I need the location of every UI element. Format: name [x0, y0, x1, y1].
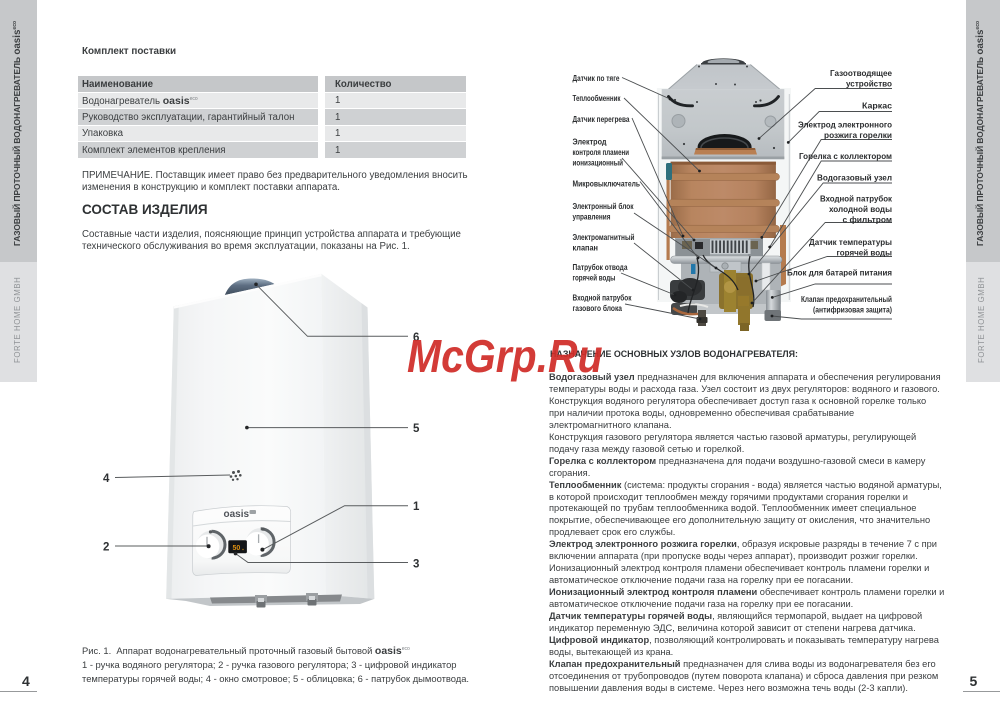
- svg-text:1: 1: [413, 501, 420, 513]
- svg-text:Электромагнитный: Электромагнитный: [573, 233, 635, 242]
- svg-text:ионизационный: ионизационный: [573, 159, 624, 168]
- svg-text:Датчик температуры: Датчик температуры: [809, 238, 892, 247]
- svg-text:Горелка с коллектором: Горелка с коллектором: [799, 152, 892, 161]
- svg-text:Входной патрубок: Входной патрубок: [820, 194, 893, 203]
- svg-text:Теплообменник: Теплообменник: [573, 94, 622, 103]
- svg-text:устройство: устройство: [846, 79, 892, 88]
- svg-text:2: 2: [103, 542, 109, 554]
- svg-text:холодной воды: холодной воды: [829, 205, 892, 214]
- svg-text:с фильтром: с фильтром: [843, 215, 893, 224]
- svg-text:управления: управления: [573, 212, 611, 221]
- svg-text:4: 4: [103, 473, 110, 485]
- svg-text:контроля пламени: контроля пламени: [573, 148, 630, 157]
- svg-text:Блок для батарей питания: Блок для батарей питания: [787, 268, 892, 277]
- svg-text:Электронный блок: Электронный блок: [573, 202, 635, 211]
- svg-text:Электрод электронного: Электрод электронного: [798, 120, 892, 129]
- svg-text:розжига горелки: розжига горелки: [824, 131, 892, 140]
- svg-text:горячей воды: горячей воды: [837, 248, 893, 257]
- svg-text:клапан: клапан: [573, 243, 599, 252]
- svg-text:(антифризовая защита): (антифризовая защита): [813, 305, 892, 314]
- svg-text:5: 5: [413, 423, 420, 435]
- svg-text:Газоотводящее: Газоотводящее: [830, 69, 893, 78]
- svg-text:oasis: oasis: [224, 509, 250, 520]
- svg-text:Датчик по тяге: Датчик по тяге: [573, 74, 620, 83]
- svg-text:Входной патрубок: Входной патрубок: [573, 294, 633, 303]
- svg-text:Клапан предохранительный: Клапан предохранительный: [801, 295, 892, 304]
- svg-text:50: 50: [233, 545, 241, 552]
- svg-text:горячей воды: горячей воды: [573, 273, 616, 282]
- svg-text:Электрод: Электрод: [573, 138, 607, 147]
- svg-text:газового блока: газового блока: [573, 304, 623, 313]
- svg-text:3: 3: [413, 559, 419, 571]
- svg-text:Каркас: Каркас: [862, 101, 893, 110]
- svg-text:Патрубок отвода: Патрубок отвода: [573, 263, 628, 272]
- svg-text:Датчик перегрева: Датчик перегрева: [573, 115, 630, 124]
- svg-text:Микровыключатель: Микровыключатель: [573, 179, 641, 188]
- svg-text:Водогазовый узел: Водогазовый узел: [817, 173, 892, 182]
